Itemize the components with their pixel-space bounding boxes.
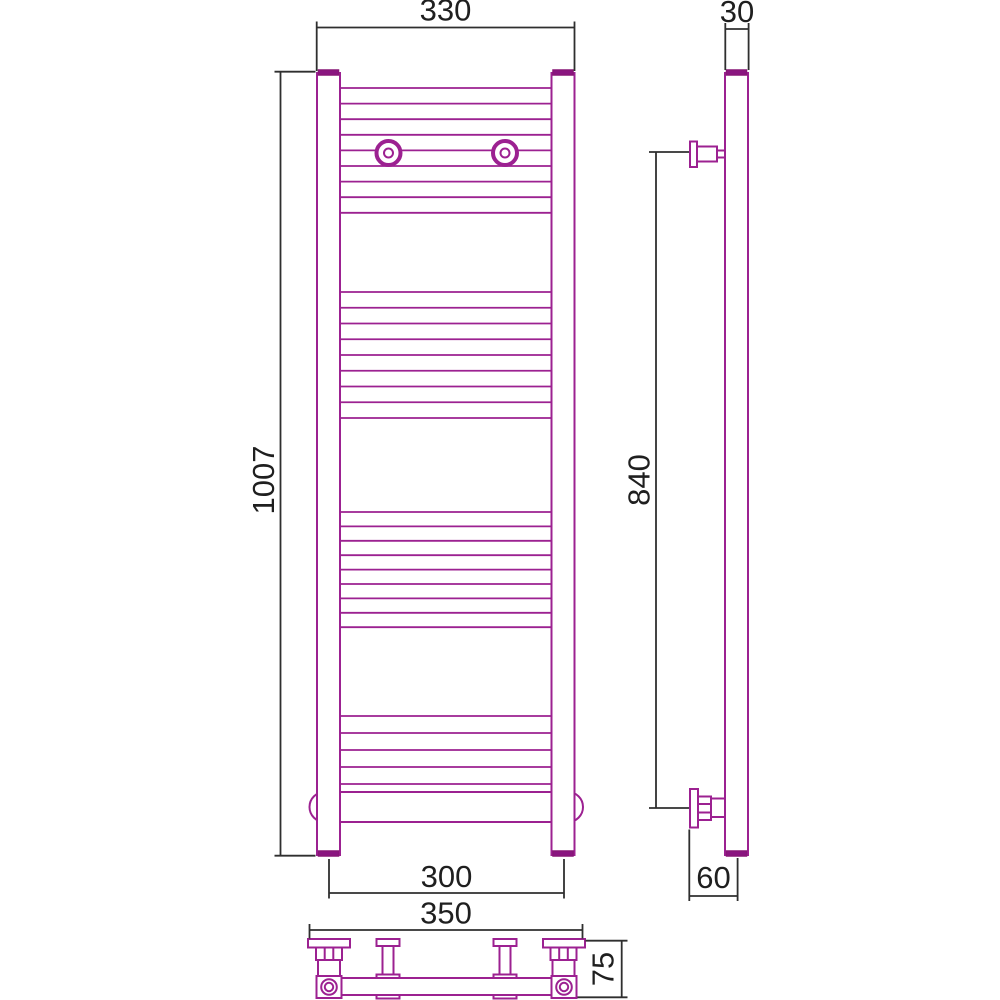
dimension-valve-height: 75 [578,941,628,998]
bottom-connection-assembly [308,939,585,999]
front-left-tube [317,73,340,855]
dimension-bracket-span: 840 [622,152,690,808]
dimension-front-height: 1007 [246,72,316,856]
dim-60-label: 60 [696,860,730,895]
dimension-front-top-width: 330 [317,0,575,71]
front-right-bottom-plug [553,851,573,856]
mount-bracket-left [377,141,401,165]
dim-75-label: 75 [586,952,621,986]
drawing-canvas: 330 30 1007 840 300 [0,0,1000,1000]
front-right-tube [552,73,575,855]
dim-1007-label: 1007 [246,446,281,515]
rung-group-2 [340,292,552,418]
dim-300-label: 300 [421,859,473,894]
side-top-plug [727,70,747,75]
dimension-side-depth: 30 [720,0,754,70]
front-left-bottom-plug [319,851,339,856]
side-bottom-wall-bracket [690,789,725,828]
bottom-collector-tube [310,792,584,822]
front-right-top-plug [553,70,573,75]
front-left-top-plug [319,70,339,75]
dim-350-label: 350 [420,896,472,931]
side-bottom-plug [727,851,747,856]
rung-group-1 [340,88,552,213]
dimension-bottom-overall-width: 350 [310,896,583,939]
mount-bracket-right [493,141,517,165]
dim-30-label: 30 [720,0,754,29]
dim-330-label: 330 [420,0,472,28]
dim-840-label: 840 [622,454,657,506]
connection-pipe [342,978,552,995]
side-tube [725,73,748,855]
rung-group-4 [340,716,552,784]
rung-group-3 [340,512,552,627]
dimension-bottom-axis-width: 300 [329,859,564,899]
front-view [310,70,584,856]
side-view [690,70,748,856]
side-top-wall-bracket [690,142,725,168]
technical-drawing: 330 30 1007 840 300 [0,0,1000,1000]
